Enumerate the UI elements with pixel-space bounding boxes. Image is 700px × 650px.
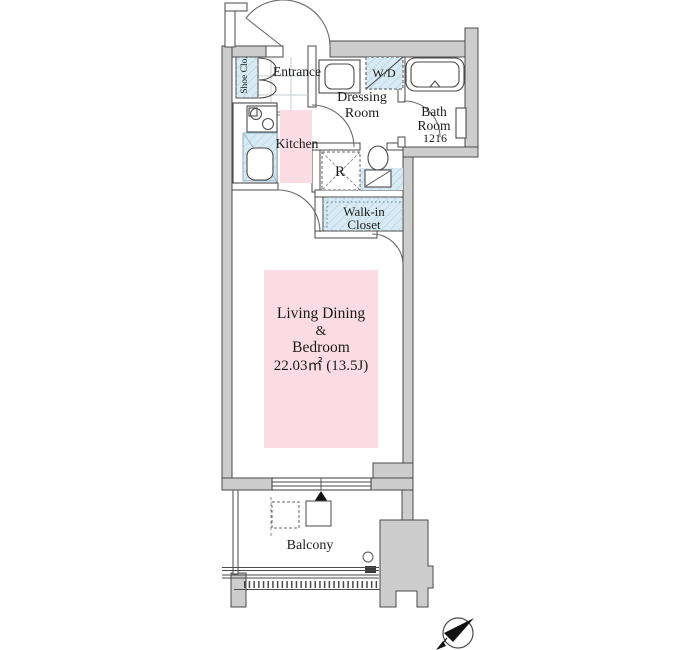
wall-dressing-bath-lower xyxy=(398,137,405,147)
wall-wic-top xyxy=(315,190,403,197)
toilet xyxy=(358,146,403,190)
entrance-door-leaf xyxy=(246,18,283,47)
entrance-door-jamb xyxy=(266,46,283,57)
window-wall-right xyxy=(371,478,413,490)
top-wall-right xyxy=(330,41,465,57)
entrance-door-arc xyxy=(246,0,330,47)
top-left-wall-stub xyxy=(225,3,247,11)
wall-dressing-bottom xyxy=(312,143,360,150)
bathroom-label-1: Bath xyxy=(421,104,447,119)
wic-door-arc xyxy=(372,234,403,265)
dressing-room-label-2: Room xyxy=(345,106,379,121)
balcony-left-thin-wall xyxy=(233,490,238,574)
window-step-block xyxy=(373,463,413,478)
bath-door-panel xyxy=(456,108,466,138)
compass-icon xyxy=(436,618,474,650)
window-wall-left xyxy=(222,478,272,490)
refrigerator-label: R xyxy=(335,164,345,180)
washbasin xyxy=(319,60,360,93)
right-wall xyxy=(403,157,413,463)
living-label-3: Bedroom xyxy=(292,339,350,356)
stove-icon xyxy=(247,106,277,132)
sink-icon xyxy=(247,148,273,180)
living-label-1: Living Dining xyxy=(277,305,366,322)
balcony-window xyxy=(272,478,371,502)
wic-label-2: Closet xyxy=(347,217,381,232)
balcony-right-wall xyxy=(402,490,413,520)
bath-outer-right-wall xyxy=(465,28,478,157)
kitchen-label: Kitchen xyxy=(276,136,319,151)
drain-icon xyxy=(363,552,373,562)
bathtub-icon xyxy=(406,58,464,91)
living-area-label: 22.03㎡ (13.5J) xyxy=(274,357,369,374)
outdoor-unit xyxy=(306,501,331,526)
wall-living-top xyxy=(232,183,278,190)
entry-direction-marker xyxy=(314,491,328,502)
left-wall xyxy=(222,46,232,490)
kitchen-counter xyxy=(233,103,277,183)
living-room-door-arc xyxy=(278,190,320,232)
bath-bottom-wall xyxy=(403,147,478,157)
balcony-label: Balcony xyxy=(287,538,334,553)
wall-corridor-refrigerator xyxy=(312,150,320,192)
entrance-label: Entrance xyxy=(273,64,321,79)
shoe-closet-label: Shoe Clo. xyxy=(240,56,250,93)
toilet-bowl-icon xyxy=(368,146,388,170)
living-label-2: & xyxy=(316,324,327,339)
balcony-column xyxy=(380,520,433,607)
washer-dryer-label: W/D xyxy=(372,66,396,80)
floorplan: Entrance Shoe Clo. Dressing Room W/D Bat… xyxy=(0,0,700,650)
wall-wic-bottom xyxy=(315,231,377,238)
bathroom-size-label: 1216 xyxy=(423,131,447,145)
dressing-room-label-1: Dressing xyxy=(337,90,387,105)
outdoor-unit-space-dashed xyxy=(272,502,299,528)
